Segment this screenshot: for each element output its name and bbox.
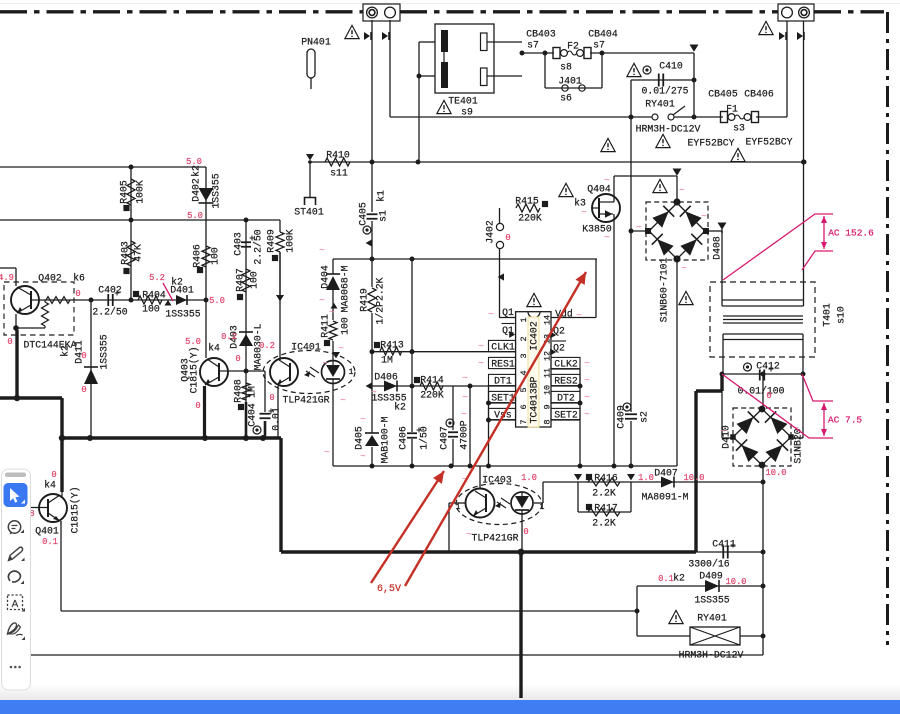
svg-text:~: ~ xyxy=(720,427,725,437)
svg-text:R403: R403 xyxy=(119,241,130,265)
svg-text:R409: R409 xyxy=(265,229,276,253)
svg-text:k2: k2 xyxy=(673,572,685,583)
svg-text:6,5V: 6,5V xyxy=(377,584,401,595)
svg-text:0.2: 0.2 xyxy=(221,332,237,342)
svg-text:~: ~ xyxy=(478,359,483,369)
svg-text:R417: R417 xyxy=(594,502,618,513)
svg-text:R415: R415 xyxy=(515,195,539,206)
svg-text:2.2K: 2.2K xyxy=(592,487,616,498)
svg-text:s10: s10 xyxy=(835,306,846,324)
svg-text:2.2/50: 2.2/50 xyxy=(92,306,127,317)
svg-text:J402: J402 xyxy=(484,220,495,244)
svg-text:TLP421GR: TLP421GR xyxy=(471,532,518,543)
svg-text:Q1: Q1 xyxy=(502,307,514,318)
svg-text:C1815(Y): C1815(Y) xyxy=(69,486,80,533)
svg-text:1SS355: 1SS355 xyxy=(210,173,221,208)
svg-text:R410: R410 xyxy=(326,149,350,160)
svg-text:IC402: IC402 xyxy=(529,321,540,351)
svg-text:1.0: 1.0 xyxy=(638,473,654,483)
svg-text:~: ~ xyxy=(604,233,609,243)
svg-text:S1NB60-7101: S1NB60-7101 xyxy=(658,258,669,323)
svg-text:EYF52BCY: EYF52BCY xyxy=(687,137,734,148)
svg-text:R406: R406 xyxy=(191,244,202,268)
svg-text:TE401: TE401 xyxy=(448,95,478,106)
svg-text:C407: C407 xyxy=(438,426,449,450)
svg-text:5.2: 5.2 xyxy=(149,273,165,283)
svg-text:Q402: Q402 xyxy=(38,272,62,283)
svg-text:~: ~ xyxy=(584,410,589,420)
svg-text:0: 0 xyxy=(51,470,56,480)
svg-text:~: ~ xyxy=(461,410,466,420)
svg-text:D404: D404 xyxy=(319,265,330,289)
svg-text:DT1: DT1 xyxy=(494,375,512,386)
svg-text:R404: R404 xyxy=(142,289,166,300)
svg-text:R419: R419 xyxy=(358,288,369,312)
svg-text:10.0: 10.0 xyxy=(683,473,704,483)
svg-text:CLK1: CLK1 xyxy=(491,341,515,352)
svg-text:1: 1 xyxy=(456,503,461,512)
svg-text:1M: 1M xyxy=(381,354,393,365)
svg-text:~: ~ xyxy=(462,393,467,403)
svg-text:D407: D407 xyxy=(654,467,678,478)
svg-text:~: ~ xyxy=(681,264,686,274)
svg-text:AC 7.5: AC 7.5 xyxy=(828,415,863,426)
svg-text:SET2: SET2 xyxy=(554,409,578,420)
svg-text:IC401: IC401 xyxy=(291,341,321,352)
svg-text:CLK2: CLK2 xyxy=(554,358,578,369)
svg-text:k2: k2 xyxy=(394,401,406,412)
svg-text:~: ~ xyxy=(604,176,609,186)
svg-text:~: ~ xyxy=(466,530,471,540)
svg-text:4700P: 4700P xyxy=(458,420,469,450)
svg-text:C405: C405 xyxy=(357,202,368,226)
svg-text:C406: C406 xyxy=(397,426,408,450)
svg-text:HRM3H-DC12V: HRM3H-DC12V xyxy=(636,123,701,134)
svg-text:D408: D408 xyxy=(711,236,722,260)
svg-text:k1: k1 xyxy=(375,190,386,202)
svg-text:RES1: RES1 xyxy=(491,358,515,369)
svg-text:D406: D406 xyxy=(374,371,398,382)
svg-text:s9: s9 xyxy=(461,106,473,117)
svg-text:~: ~ xyxy=(360,452,365,462)
svg-text:0: 0 xyxy=(235,354,240,364)
svg-text:10.0: 10.0 xyxy=(765,468,786,478)
svg-text:k2: k2 xyxy=(59,345,70,357)
svg-text:5.0: 5.0 xyxy=(185,337,201,347)
svg-text:A: A xyxy=(12,599,19,610)
svg-text:RES2: RES2 xyxy=(554,375,578,386)
svg-text:~: ~ xyxy=(462,374,467,384)
svg-text:0: 0 xyxy=(81,351,86,361)
svg-text:CB405: CB405 xyxy=(708,88,738,99)
svg-text:R407: R407 xyxy=(234,268,245,292)
svg-text:CB403: CB403 xyxy=(526,28,556,39)
svg-text:F1: F1 xyxy=(726,103,738,114)
svg-text:0.1: 0.1 xyxy=(42,537,58,547)
svg-text:~: ~ xyxy=(322,359,327,369)
svg-text:T401: T401 xyxy=(821,303,832,327)
svg-text:1/50: 1/50 xyxy=(418,426,429,450)
svg-text:C410: C410 xyxy=(659,60,683,71)
svg-text:R408: R408 xyxy=(232,379,243,403)
svg-text:7: 7 xyxy=(519,419,529,424)
svg-text:0: 0 xyxy=(81,385,86,395)
svg-text:1M: 1M xyxy=(246,386,257,398)
svg-text:1: 1 xyxy=(519,317,529,322)
svg-text:C403: C403 xyxy=(232,232,243,256)
svg-text:s7: s7 xyxy=(527,39,539,50)
svg-text:~: ~ xyxy=(701,212,706,222)
svg-text:0: 0 xyxy=(7,337,12,347)
svg-text:~: ~ xyxy=(338,344,343,354)
svg-text:2.2K: 2.2K xyxy=(592,517,616,528)
svg-text:~: ~ xyxy=(478,342,483,352)
svg-text:s3: s3 xyxy=(733,122,745,133)
svg-text:0.2: 0.2 xyxy=(259,341,275,351)
svg-text:3: 3 xyxy=(519,353,529,358)
svg-text:1: 1 xyxy=(540,503,545,512)
svg-text:~: ~ xyxy=(319,246,324,256)
svg-text:MA8068-M: MA8068-M xyxy=(339,265,350,312)
svg-text:C404: C404 xyxy=(246,403,257,427)
svg-text:S1NB20: S1NB20 xyxy=(792,428,803,463)
svg-text:1.0: 1.0 xyxy=(521,473,537,483)
svg-text:2: 2 xyxy=(519,336,529,341)
svg-text:0: 0 xyxy=(269,393,274,403)
svg-text:R414: R414 xyxy=(420,374,444,385)
svg-text:~: ~ xyxy=(584,359,589,369)
svg-text:0: 0 xyxy=(75,289,80,299)
svg-text:~: ~ xyxy=(584,393,589,403)
svg-text:5.0: 5.0 xyxy=(209,296,225,306)
svg-text:220K: 220K xyxy=(518,212,542,223)
svg-text:RY401: RY401 xyxy=(645,98,675,109)
svg-text:~: ~ xyxy=(576,311,581,321)
svg-text:TLP421GR: TLP421GR xyxy=(282,394,329,405)
svg-text:~: ~ xyxy=(584,376,589,386)
svg-text:1SS355: 1SS355 xyxy=(98,334,109,369)
svg-text:1SS355: 1SS355 xyxy=(694,594,729,605)
svg-text:1SS355: 1SS355 xyxy=(165,308,200,319)
svg-text:HRM3H-DC12V: HRM3H-DC12V xyxy=(679,649,744,660)
svg-text:C409: C409 xyxy=(615,405,626,429)
svg-text:IC403: IC403 xyxy=(482,474,512,485)
svg-text:100: 100 xyxy=(248,271,259,289)
svg-text:s1: s1 xyxy=(377,210,388,222)
svg-text:D405: D405 xyxy=(353,426,364,450)
svg-text:1: 1 xyxy=(349,368,354,377)
svg-text:220K: 220K xyxy=(420,389,444,400)
svg-text:100K: 100K xyxy=(134,180,145,204)
svg-text:4.9: 4.9 xyxy=(0,273,14,283)
svg-text:0: 0 xyxy=(766,391,771,401)
svg-text:14: 14 xyxy=(543,315,553,325)
svg-text:CB406: CB406 xyxy=(744,88,774,99)
svg-text:ST401: ST401 xyxy=(294,206,324,217)
svg-text:MAB100-M: MAB100-M xyxy=(379,416,390,463)
svg-text:5.0: 5.0 xyxy=(187,211,203,221)
svg-text:~: ~ xyxy=(340,396,345,406)
svg-text:R416: R416 xyxy=(594,472,618,483)
svg-text:s7: s7 xyxy=(593,39,605,50)
svg-text:CB404: CB404 xyxy=(588,28,618,39)
svg-text:s2: s2 xyxy=(638,411,649,423)
svg-text:s8: s8 xyxy=(560,61,572,72)
svg-text:5.0: 5.0 xyxy=(186,157,202,167)
svg-text:MA8091-M: MA8091-M xyxy=(641,491,688,502)
svg-text:RY401: RY401 xyxy=(697,612,727,623)
svg-text:F2: F2 xyxy=(567,40,579,51)
svg-text:~: ~ xyxy=(319,296,324,306)
svg-text:D409: D409 xyxy=(699,570,723,581)
svg-text:R411: R411 xyxy=(319,314,330,338)
svg-text:100: 100 xyxy=(339,317,350,335)
svg-text:100K: 100K xyxy=(284,229,295,253)
svg-text:EYF52BCY: EYF52BCY xyxy=(745,136,792,147)
svg-text:100: 100 xyxy=(142,303,160,314)
svg-text:~: ~ xyxy=(324,448,329,458)
svg-text:k6: k6 xyxy=(73,272,85,283)
svg-text:~: ~ xyxy=(360,415,365,425)
svg-text:~: ~ xyxy=(581,208,586,218)
svg-text:0.01/275: 0.01/275 xyxy=(641,85,688,96)
svg-text:R405: R405 xyxy=(118,180,129,204)
svg-text:10.0: 10.0 xyxy=(725,577,746,587)
svg-text:C411: C411 xyxy=(712,538,736,549)
svg-text:s11: s11 xyxy=(330,167,348,178)
svg-text:47K: 47K xyxy=(132,244,143,262)
svg-text:R413: R413 xyxy=(380,339,404,350)
svg-text:1/2P2.2K: 1/2P2.2K xyxy=(374,277,385,324)
svg-text:k4: k4 xyxy=(208,342,220,353)
svg-text:k4: k4 xyxy=(44,479,56,490)
svg-text:6: 6 xyxy=(519,404,529,409)
svg-text:0: 0 xyxy=(505,233,510,243)
svg-text:J401: J401 xyxy=(558,75,582,86)
svg-text:TC4013BP: TC4013BP xyxy=(529,376,540,423)
svg-text:0: 0 xyxy=(195,401,200,411)
svg-text:100: 100 xyxy=(209,247,220,265)
svg-text:AC 152.6: AC 152.6 xyxy=(828,228,874,239)
svg-text:~: ~ xyxy=(371,388,376,398)
svg-text:s6: s6 xyxy=(560,92,572,103)
svg-text:C402: C402 xyxy=(98,284,122,295)
svg-text:Q401: Q401 xyxy=(35,525,59,536)
svg-text:5: 5 xyxy=(519,387,529,392)
svg-text:DT2: DT2 xyxy=(557,392,575,403)
svg-text:3300/16: 3300/16 xyxy=(688,558,729,569)
svg-text:0: 0 xyxy=(523,527,528,537)
svg-text:~: ~ xyxy=(636,223,641,233)
svg-text:C412: C412 xyxy=(756,360,780,371)
svg-text:PN401: PN401 xyxy=(301,36,331,47)
svg-text:~: ~ xyxy=(488,310,493,320)
svg-text:0.1: 0.1 xyxy=(658,574,674,584)
svg-text:~: ~ xyxy=(679,186,684,196)
svg-text:0.01: 0.01 xyxy=(270,407,281,431)
svg-text:k2: k2 xyxy=(171,276,183,287)
svg-text:D402: D402 xyxy=(190,178,201,202)
svg-text:~: ~ xyxy=(329,308,334,318)
svg-text:2.2/50: 2.2/50 xyxy=(252,229,263,264)
svg-text:C1815(Y): C1815(Y) xyxy=(188,346,199,393)
